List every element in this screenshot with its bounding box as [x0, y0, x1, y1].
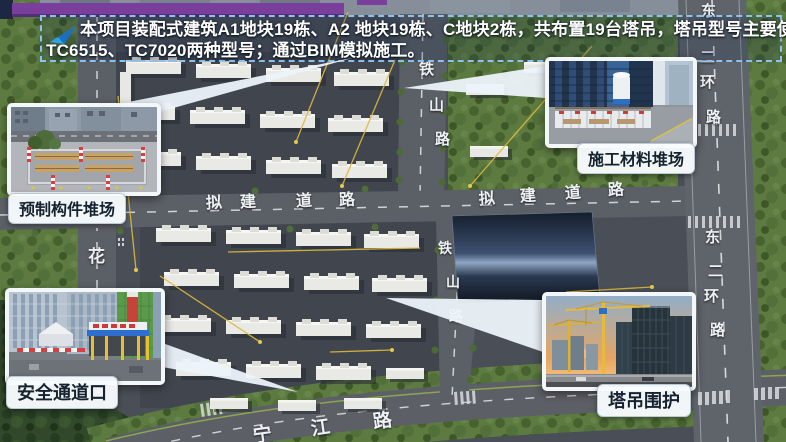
banner-line1-row: 本项目装配式建筑A1地块19栋、A2 地块19栋、C地块2栋，共布置19台塔吊，…: [46, 19, 780, 40]
bim-site-plan-slide: 铁山路铁山路拟建道路拟建道路东二环路东二环路花宁江路 本项目装配式建筑A1地块1…: [0, 0, 786, 442]
send-arrow-icon: [50, 25, 76, 45]
callout-label-precast-yard: 预制构件堆场: [8, 193, 126, 224]
inset-photo-material-yard: [545, 57, 697, 148]
callout-label-safety-entrance: 安全通道口: [6, 376, 118, 409]
callout-label-material-yard: 施工材料堆场: [577, 143, 695, 174]
project-description-banner: 本项目装配式建筑A1地块19栋、A2 地块19栋、C地块2栋，共布置19台塔吊，…: [40, 15, 782, 62]
callout-label-crane-enclosure: 塔吊围护: [597, 384, 691, 417]
inset-photo-safety-entrance: [5, 288, 165, 385]
inset-photo-crane-enclosure: [542, 292, 696, 391]
inset-photo-precast-yard: [7, 103, 161, 196]
top-purple-fragment: [357, 0, 387, 5]
banner-text-line2: TC6515、TC7020两种型号；通过BIM模拟施工。: [46, 41, 425, 60]
banner-text-line1: 本项目装配式建筑A1地块19栋、A2 地块19栋、C地块2栋，共布置19台塔吊，…: [80, 20, 786, 39]
